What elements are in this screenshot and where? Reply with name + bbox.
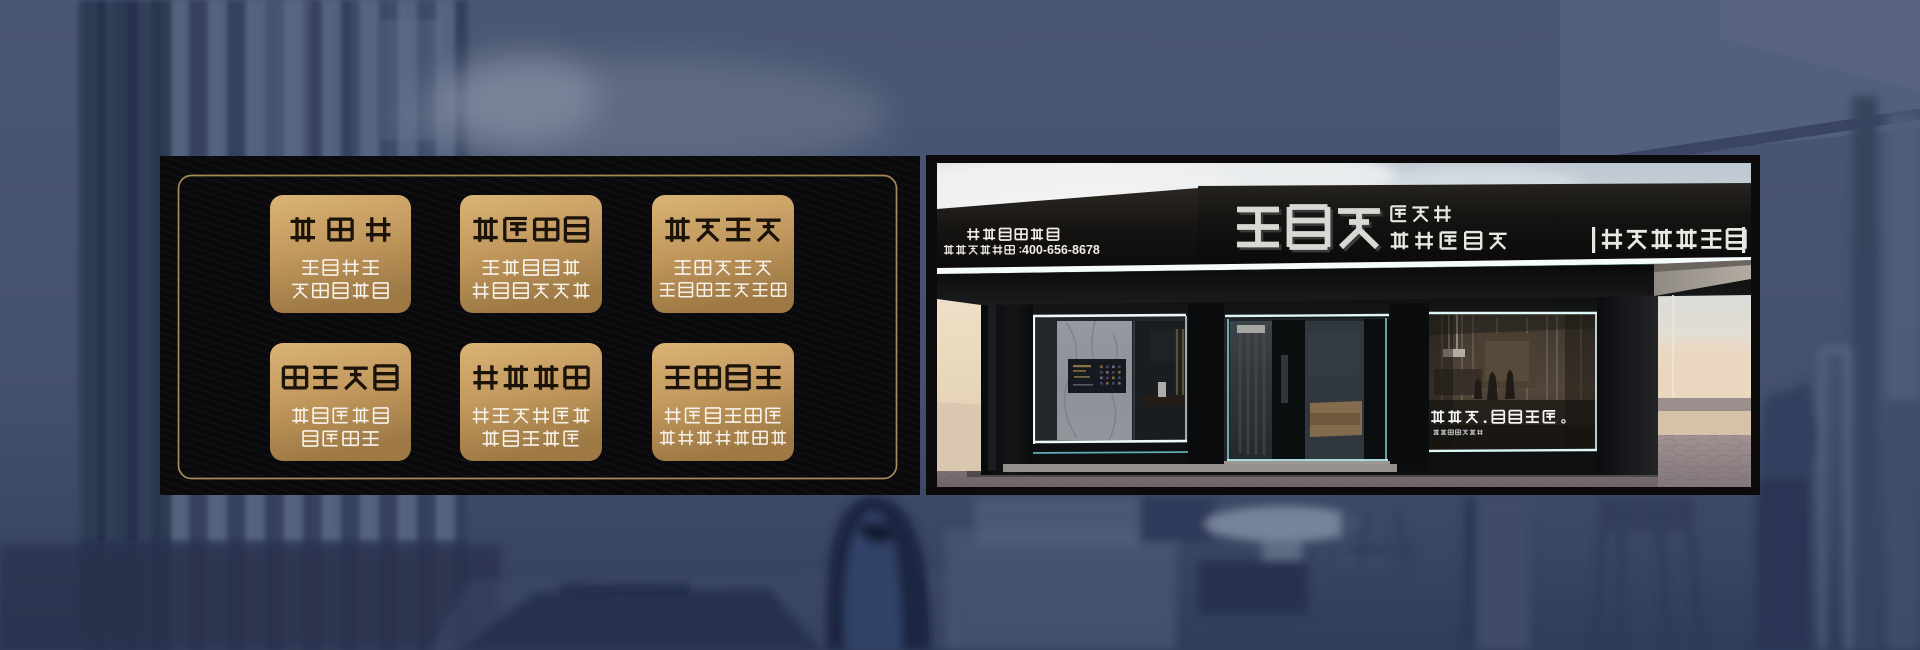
- svg-text:400-656-8678: 400-656-8678: [1022, 243, 1100, 257]
